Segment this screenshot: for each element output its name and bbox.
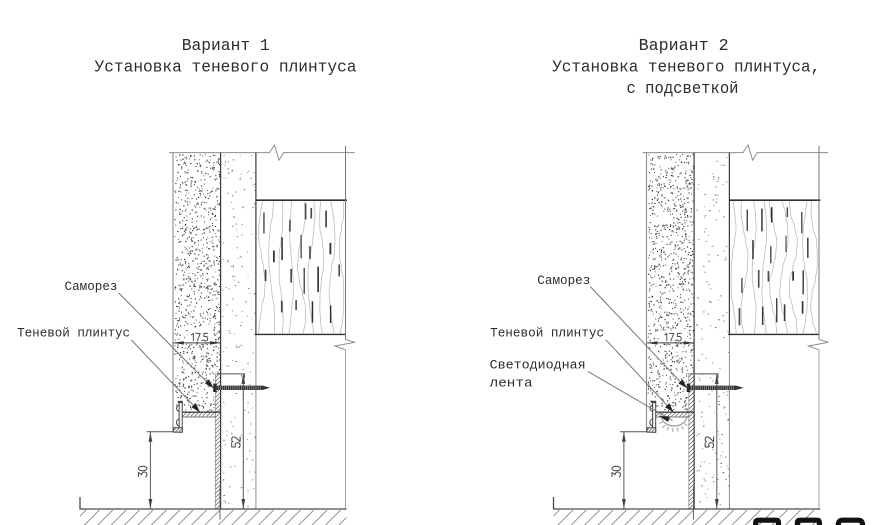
svg-text:Саморез: Саморез <box>537 273 590 288</box>
svg-text:Светодиодная: Светодиодная <box>490 357 586 372</box>
svg-text:Вариант 1: Вариант 1 <box>182 36 270 55</box>
svg-text:Саморез: Саморез <box>65 279 118 294</box>
svg-text:Теневой плинтус: Теневой плинтус <box>490 325 604 340</box>
svg-text:Установка теневого плинтуса,: Установка теневого плинтуса, <box>552 58 820 77</box>
svg-text:Теневой плинтус: Теневой плинтус <box>17 325 130 340</box>
svg-text:Вариант 2: Вариант 2 <box>639 36 729 55</box>
svg-text:лента: лента <box>490 375 533 390</box>
svg-text:с подсветкой: с подсветкой <box>627 79 739 98</box>
svg-text:Установка теневого плинтуса: Установка теневого плинтуса <box>95 58 357 77</box>
